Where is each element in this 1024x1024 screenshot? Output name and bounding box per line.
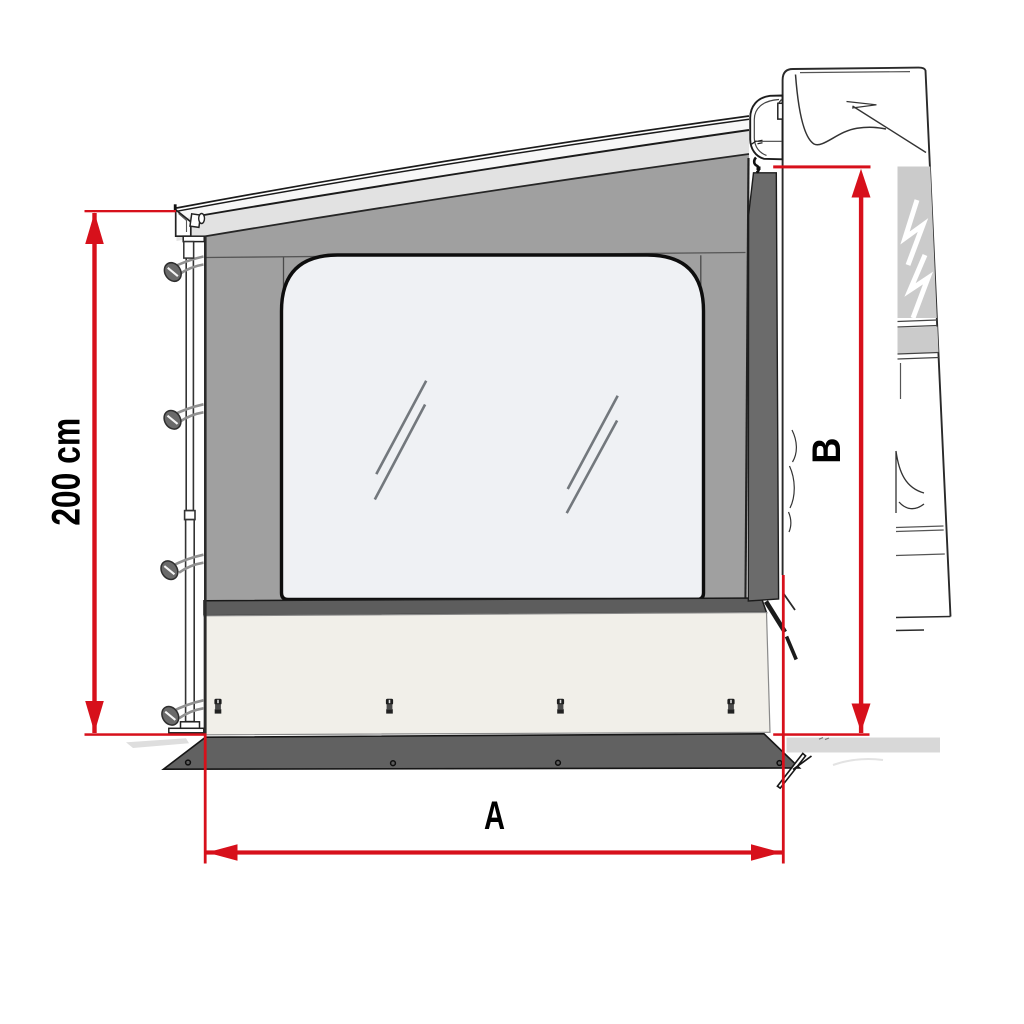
svg-text:200 cm: 200 cm <box>45 418 89 526</box>
svg-text:A: A <box>484 794 505 838</box>
svg-text:B: B <box>805 438 849 464</box>
